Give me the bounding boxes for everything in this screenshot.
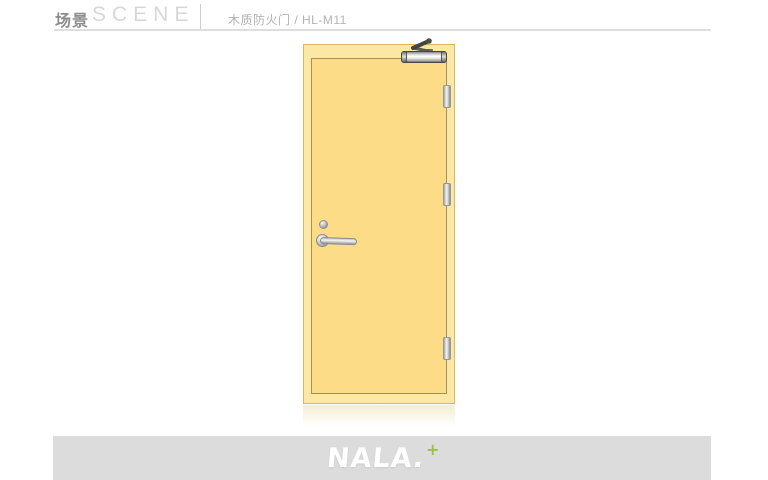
brand-name: NALA.	[325, 443, 425, 474]
door-reflection	[303, 405, 455, 431]
door-closer	[400, 38, 448, 65]
door-hinge-bottom	[443, 337, 451, 360]
door-face-panel	[311, 58, 447, 394]
door-closer-body	[401, 51, 447, 63]
door-hinge-middle	[443, 183, 451, 206]
door-hinge-top	[443, 85, 451, 108]
brand-plus-icon: +	[426, 440, 439, 459]
brand-logo: NALA.+	[53, 436, 711, 480]
lock-cylinder	[319, 220, 328, 229]
page: 场景 SCENE 木质防火门 / HL-M11	[0, 0, 768, 480]
footer-bar: NALA.+	[53, 436, 711, 480]
header-rule	[54, 29, 711, 31]
header-divider	[200, 4, 201, 29]
product-label: 木质防火门 / HL-M11	[228, 11, 347, 28]
lever-handle	[320, 237, 357, 245]
page-title-en: SCENE	[92, 3, 194, 27]
fire-door	[303, 44, 455, 404]
page-title-cn: 场景	[55, 7, 89, 31]
